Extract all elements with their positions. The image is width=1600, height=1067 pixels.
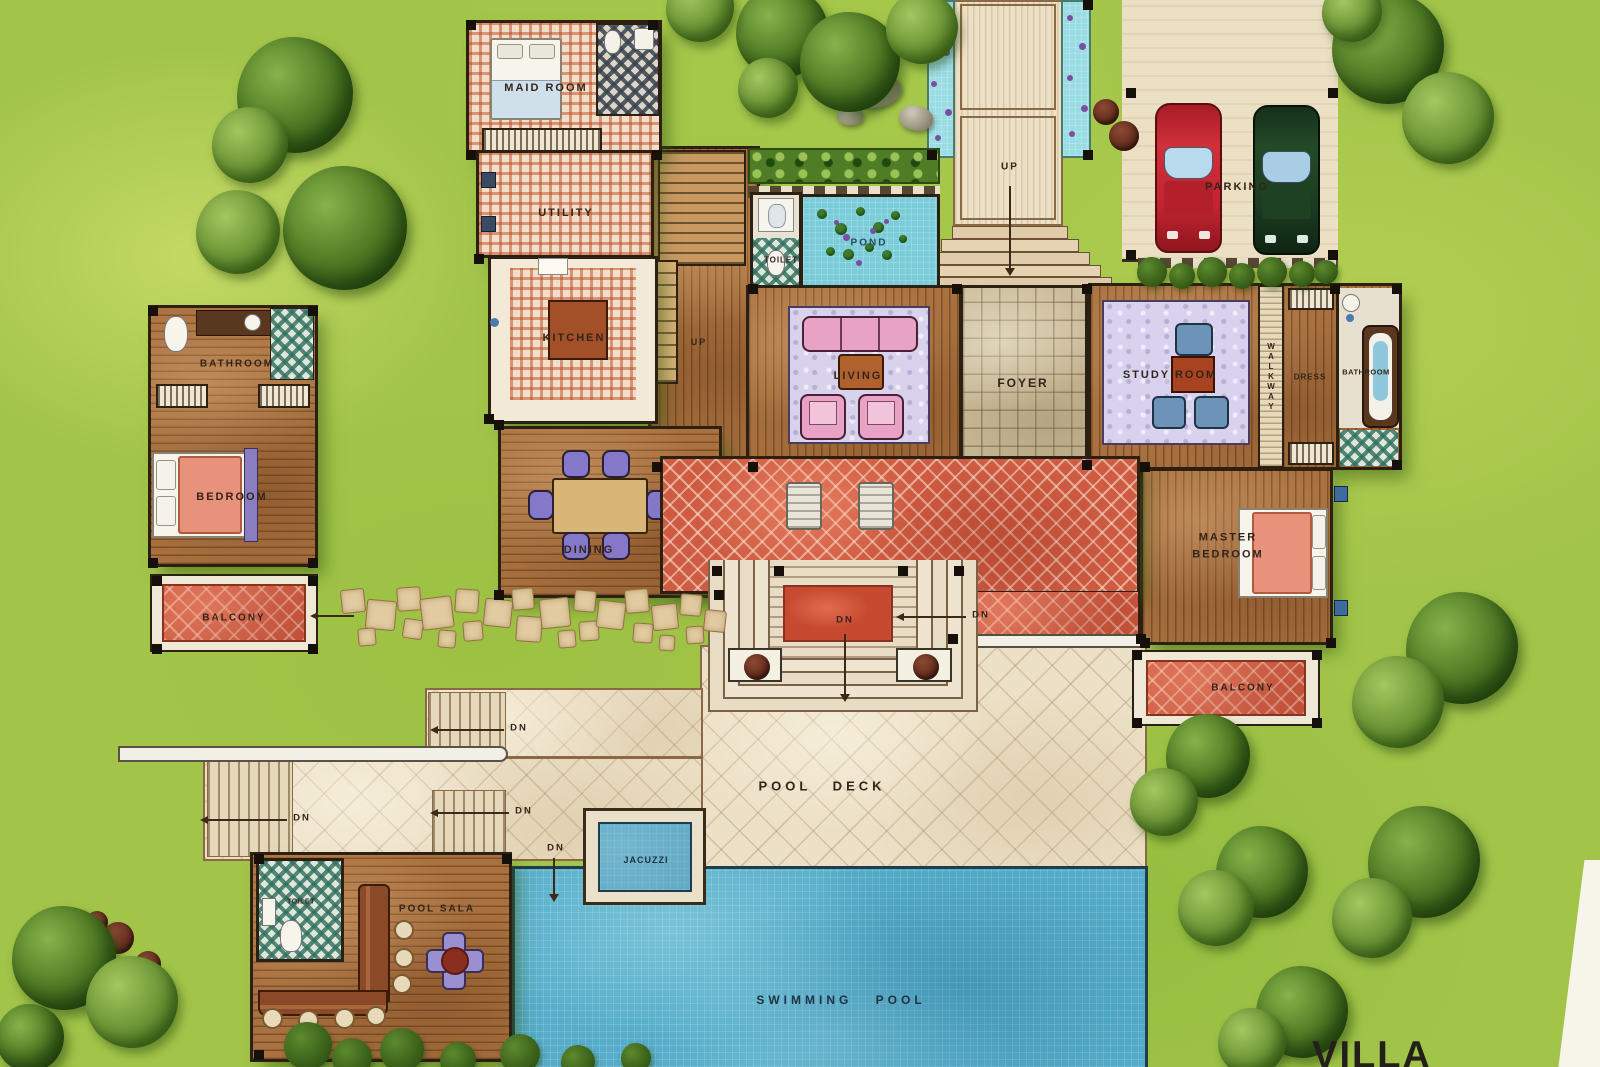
- dining-chair: [562, 450, 590, 478]
- staircase-upper: [658, 150, 746, 266]
- water-flower: [935, 135, 941, 141]
- wall-post: [1132, 718, 1142, 728]
- sala-toilet-sink: [262, 898, 276, 926]
- bush: [1197, 257, 1227, 287]
- walkway-steps: [207, 761, 293, 857]
- label-living: LIVING: [834, 370, 883, 382]
- label-balcony-right: BALCONY: [1211, 683, 1274, 694]
- bush: [1314, 260, 1338, 284]
- wall-post: [1132, 650, 1142, 660]
- sala-toilet-wc: [280, 920, 302, 952]
- wall-post: [948, 634, 958, 644]
- wall-post: [1328, 88, 1338, 98]
- utility-appliance: [481, 172, 496, 188]
- bush: [1257, 257, 1287, 287]
- water-flower: [884, 219, 889, 224]
- label-dn-walkway-3: DN: [515, 806, 533, 817]
- wall-post: [1126, 250, 1136, 260]
- bathroom-left-vanity: [196, 310, 280, 336]
- label-pool-sala: POOL SALA: [399, 904, 475, 915]
- wall-post: [1312, 718, 1322, 728]
- wall-post: [748, 284, 758, 294]
- wall-post: [254, 1050, 264, 1060]
- stepping-stone: [396, 586, 422, 612]
- wall-post: [748, 462, 758, 472]
- pillow: [156, 460, 176, 490]
- wall-post: [1083, 0, 1093, 10]
- wall-post: [1312, 650, 1322, 660]
- villa-floor-plan: MAID ROOM UTILITY KITCHEN UP TOILET POND…: [0, 0, 1600, 1067]
- wall-post: [652, 462, 662, 472]
- wall-post: [1136, 634, 1146, 644]
- nightstand: [1334, 486, 1348, 502]
- label-up-entry: UP: [1001, 162, 1019, 173]
- stepping-stone: [365, 599, 398, 632]
- utility-room: [476, 150, 654, 258]
- stepping-stone: [340, 588, 366, 614]
- label-swimming-pool: SWIMMING POOL: [756, 993, 925, 1007]
- tree: [86, 956, 178, 1048]
- walkway-steps: [428, 692, 506, 754]
- car-green-roof: [1262, 185, 1311, 219]
- tree: [1352, 656, 1444, 748]
- label-toilet-sala: TOILET: [287, 899, 315, 906]
- lily-pad: [899, 235, 907, 243]
- label-pool-deck: POOL DECK: [758, 779, 885, 794]
- label-study-room: STUDY ROOM: [1123, 369, 1217, 381]
- dn-terrace-arrowhead: [840, 694, 850, 702]
- bathroom-right-sink: [1342, 294, 1360, 312]
- label-dn-terrace-2: DN: [972, 610, 990, 621]
- bush: [621, 1043, 651, 1067]
- stepping-stone: [511, 587, 535, 611]
- kitchen-sink: [538, 258, 568, 275]
- stepping-stone: [357, 627, 377, 647]
- water-flower: [870, 228, 876, 234]
- study-chair: [1152, 396, 1186, 429]
- water-flower: [1079, 43, 1086, 50]
- stepping-stone: [632, 622, 653, 643]
- label-dress: DRESS: [1294, 373, 1327, 382]
- bush: [500, 1034, 540, 1067]
- pillow: [156, 496, 176, 526]
- tree: [0, 1004, 64, 1067]
- terrace-landing: [783, 585, 893, 642]
- wall-post: [1328, 250, 1338, 260]
- car-green: [1253, 105, 1320, 255]
- tree: [738, 58, 798, 118]
- tree: [1402, 72, 1494, 164]
- stepping-stone: [437, 629, 457, 649]
- car-red-taillight: [1167, 231, 1178, 239]
- label-dn-jacuzzi: DN: [547, 843, 565, 854]
- bar-stool: [392, 974, 412, 994]
- wall-post: [774, 566, 784, 576]
- label-dn-walkway-2: DN: [293, 813, 311, 824]
- label-bedroom-left: BEDROOM: [196, 491, 267, 503]
- wall-post: [927, 150, 937, 160]
- stepping-stone: [595, 599, 626, 630]
- pillow: [1312, 556, 1326, 590]
- dn-terrace-arrow-line: [844, 634, 846, 694]
- sofa: [802, 316, 918, 352]
- balcony-left-leader: [318, 615, 354, 617]
- maid-bed: [490, 38, 562, 120]
- stepping-stone: [515, 615, 543, 643]
- wall-post: [1392, 460, 1402, 470]
- water-flower: [856, 260, 862, 266]
- tree: [800, 12, 900, 112]
- stepping-stone: [658, 634, 675, 651]
- wall-post: [152, 644, 162, 654]
- armchair-seat: [867, 401, 895, 425]
- label-jacuzzi: JACUZZI: [624, 855, 669, 865]
- bush: [1229, 263, 1255, 289]
- toilet-main-sink: [758, 198, 794, 232]
- label-balcony-left: BALCONY: [202, 613, 265, 624]
- water-flower: [1069, 131, 1075, 137]
- water-flower: [834, 220, 839, 225]
- wall-post: [954, 566, 964, 576]
- bush: [1169, 263, 1195, 289]
- label-toilet-main: TOILET: [764, 256, 798, 265]
- sala-table-top: [441, 947, 469, 975]
- wardrobe: [258, 384, 310, 408]
- car-red-taillight: [1199, 231, 1210, 239]
- lounge-chair: [858, 482, 894, 530]
- wall-post: [308, 576, 318, 586]
- label-dining: DINING: [564, 544, 615, 556]
- wall-post: [714, 590, 724, 600]
- label-bathroom-left: BATHROOM: [200, 359, 274, 370]
- wall-post: [952, 284, 962, 294]
- stepping-stone: [483, 598, 514, 629]
- stepping-stone: [624, 588, 650, 614]
- planter-pot: [744, 654, 770, 680]
- step-planter: [728, 648, 782, 682]
- wall-post: [494, 590, 504, 600]
- tree: [666, 0, 734, 42]
- lounge-chair: [786, 482, 822, 530]
- dn-leader: [208, 819, 287, 821]
- water-flower: [843, 234, 850, 241]
- wall-post: [308, 558, 318, 568]
- stepping-stone: [651, 603, 680, 632]
- tree: [283, 166, 407, 290]
- garden-pot: [1109, 121, 1139, 151]
- armchair: [858, 394, 904, 440]
- kitchen-faucet: [490, 318, 499, 327]
- dn-leader-arrowhead: [430, 809, 438, 817]
- label-villa-title: VILLA: [1312, 1035, 1432, 1067]
- stepping-stone: [419, 595, 455, 631]
- step-planter: [896, 648, 952, 682]
- wall-post: [1326, 638, 1336, 648]
- maid-bathroom-toilet: [604, 30, 621, 54]
- bathroom-left-tile: [270, 308, 314, 380]
- maid-bathroom-sink: [634, 28, 654, 50]
- wall-post: [1083, 150, 1093, 160]
- lily-pad: [856, 207, 865, 216]
- bathroom-right-faucet: [1346, 314, 1354, 322]
- retaining-wall: [118, 746, 508, 762]
- garden-pot: [1093, 99, 1119, 125]
- wall-post: [1082, 284, 1092, 294]
- pillow: [497, 44, 523, 59]
- lily-pad: [882, 250, 892, 260]
- label-up-stairs: UP: [691, 337, 708, 347]
- bush: [284, 1022, 332, 1067]
- bar-counter-vertical: [358, 884, 390, 1002]
- nightstand: [1334, 600, 1348, 616]
- up-entry-arrowhead: [1005, 268, 1015, 276]
- label-kitchen: KITCHEN: [543, 332, 606, 344]
- wall-post: [254, 854, 264, 864]
- label-parking: PARKING: [1205, 181, 1269, 193]
- tree: [1178, 870, 1254, 946]
- up-entry-arrow-line: [1009, 186, 1011, 268]
- dn-leader-arrowhead: [200, 816, 208, 824]
- lily-pad: [826, 247, 835, 256]
- wall-post: [1082, 460, 1092, 470]
- wall-post: [1140, 462, 1150, 472]
- bathtub: [1362, 325, 1399, 428]
- stepping-stone: [462, 620, 484, 642]
- wardrobe: [156, 384, 208, 408]
- label-maid-room: MAID ROOM: [504, 82, 587, 94]
- planter-pot: [913, 654, 939, 680]
- wall-post: [712, 566, 722, 576]
- wall-post: [148, 558, 158, 568]
- scan-edge: [1548, 860, 1600, 1067]
- wall-post: [308, 644, 318, 654]
- dining-table: [552, 478, 648, 534]
- label-utility: UTILITY: [538, 207, 594, 219]
- car-green-taillight: [1265, 235, 1276, 243]
- wall-post: [652, 150, 662, 160]
- dining-chair: [528, 490, 554, 520]
- armchair: [800, 394, 846, 440]
- dn-jacuzzi-arrowhead: [549, 894, 559, 902]
- wall-post: [494, 420, 504, 430]
- armchair-seat: [809, 401, 837, 425]
- entry-pond-right: [1061, 0, 1091, 158]
- stepping-stone: [454, 588, 480, 614]
- water-flower: [1081, 105, 1088, 112]
- wall-post: [898, 566, 908, 576]
- stepping-stone: [679, 593, 703, 617]
- bar-stool: [394, 948, 414, 968]
- bar-stool: [366, 1006, 386, 1026]
- dress-wardrobe: [1288, 288, 1334, 310]
- balcony-left-arrowhead: [310, 612, 318, 620]
- label-master-bedroom: MASTER BEDROOM: [1176, 530, 1280, 563]
- tree: [212, 107, 288, 183]
- car-red-windshield: [1164, 147, 1213, 179]
- stepping-stone: [685, 625, 704, 644]
- label-dn-walkway-1: DN: [510, 723, 528, 734]
- wall-post: [148, 306, 158, 316]
- stepping-stone: [573, 589, 597, 613]
- dining-chair: [602, 450, 630, 478]
- dn-jacuzzi-arrow-line: [553, 858, 555, 894]
- car-green-taillight: [1297, 235, 1308, 243]
- tree: [196, 190, 280, 274]
- bush: [1289, 261, 1315, 287]
- water-flower: [945, 109, 952, 116]
- label-foyer: FOYER: [997, 376, 1048, 390]
- label-walkway: WALKWAY: [1267, 342, 1276, 412]
- study-chair: [1175, 323, 1213, 356]
- wall-post: [648, 20, 658, 30]
- bush: [380, 1028, 424, 1067]
- bar-stool: [334, 1008, 355, 1029]
- dn-leader-arrowhead: [430, 726, 438, 734]
- dress-wardrobe: [1288, 442, 1334, 465]
- label-bathroom-right: BATHROOM: [1342, 368, 1390, 377]
- dn-leader: [904, 616, 966, 618]
- pillow: [1312, 515, 1326, 549]
- bar-stool: [262, 1008, 283, 1029]
- label-pond: POND: [851, 238, 888, 249]
- lily-pad: [843, 249, 854, 260]
- walkway-steps: [432, 790, 506, 858]
- entry-walkway-panel: [960, 4, 1056, 110]
- kitchen-island: [548, 300, 608, 360]
- water-flower: [1067, 75, 1073, 81]
- stepping-stone: [557, 629, 577, 649]
- bathroom-right-tile: [1340, 430, 1398, 466]
- stepping-stone: [703, 609, 727, 633]
- dn-leader-arrowhead: [896, 613, 904, 621]
- wall-post: [466, 20, 476, 30]
- utility-appliance: [481, 216, 496, 232]
- lily-pad: [891, 211, 900, 220]
- wall-post: [1126, 88, 1136, 98]
- hedge-strip: [748, 148, 940, 184]
- bar-stool: [394, 920, 414, 940]
- car-red: [1155, 103, 1222, 253]
- wall-post: [502, 854, 512, 864]
- pillow: [529, 44, 555, 59]
- water-flower: [931, 81, 937, 87]
- wall-post: [466, 150, 476, 160]
- tree: [1218, 1008, 1286, 1067]
- dn-leader: [438, 729, 504, 731]
- toilet-main-basin: [768, 204, 786, 228]
- tree: [1130, 768, 1198, 836]
- tree: [1332, 878, 1412, 958]
- wall-post: [474, 254, 484, 264]
- stepping-stone: [539, 597, 572, 630]
- wall-post: [1330, 284, 1340, 294]
- water-flower: [1067, 15, 1073, 21]
- bush: [1137, 257, 1167, 287]
- label-dn-terrace: DN: [836, 615, 854, 626]
- wall-post: [1392, 284, 1402, 294]
- study-chair: [1194, 396, 1229, 429]
- wall-post: [484, 414, 494, 424]
- car-green-windshield: [1262, 151, 1311, 183]
- lily-pad: [817, 209, 827, 219]
- wall-post: [152, 576, 162, 586]
- bathroom-left-wc: [164, 316, 188, 352]
- wall-post: [308, 306, 318, 316]
- bathroom-left-sink: [244, 314, 261, 331]
- dn-leader: [438, 812, 509, 814]
